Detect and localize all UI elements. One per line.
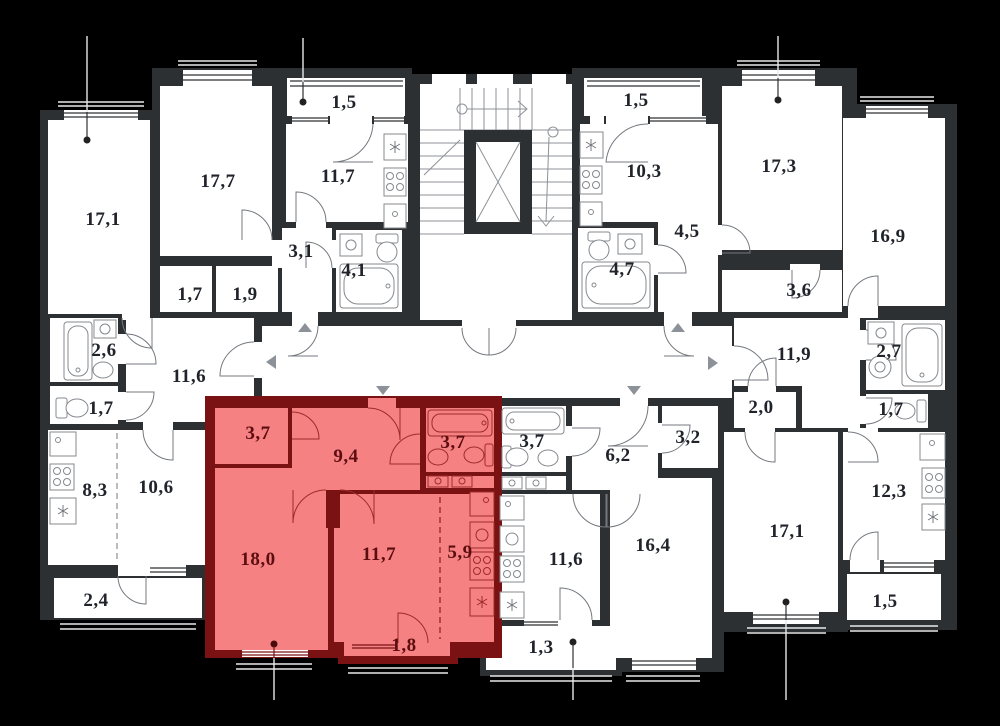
sink-icon (868, 322, 894, 344)
kitchen-appliances-icon (50, 432, 76, 524)
kitchen-appliances-icon (500, 496, 524, 618)
common-corridor (254, 312, 734, 408)
sink-icon (618, 234, 642, 254)
kitchen-appliances-icon (470, 492, 494, 616)
bathtub-icon (502, 408, 564, 434)
sink-icon (94, 320, 116, 338)
toilet-icon (588, 232, 610, 260)
toilet-icon (376, 234, 398, 262)
toilet-icon (56, 398, 88, 418)
sink-icon (538, 450, 558, 466)
washer-icon (869, 356, 891, 378)
kitchen-appliances-icon (580, 132, 603, 226)
bathtub-icon (340, 264, 398, 308)
bathtub-icon (64, 322, 92, 380)
kitchen-appliances-icon (384, 134, 406, 228)
kitchen-appliances-icon (920, 434, 945, 530)
sink-icon (340, 234, 362, 256)
sink-icon (428, 449, 448, 465)
stair-core (420, 74, 572, 320)
elevator (464, 130, 532, 234)
floor-plan-drawing (0, 0, 1000, 726)
apartment-highlighted[interactable] (205, 396, 502, 664)
bathtub-icon (582, 262, 650, 308)
sink-icon (93, 362, 113, 378)
floor-plan-canvas: 17,117,71,511,73,14,11,71,92,61,510,317,… (0, 0, 1000, 726)
bathtub-icon (902, 324, 942, 386)
bathtub-icon (428, 410, 492, 436)
